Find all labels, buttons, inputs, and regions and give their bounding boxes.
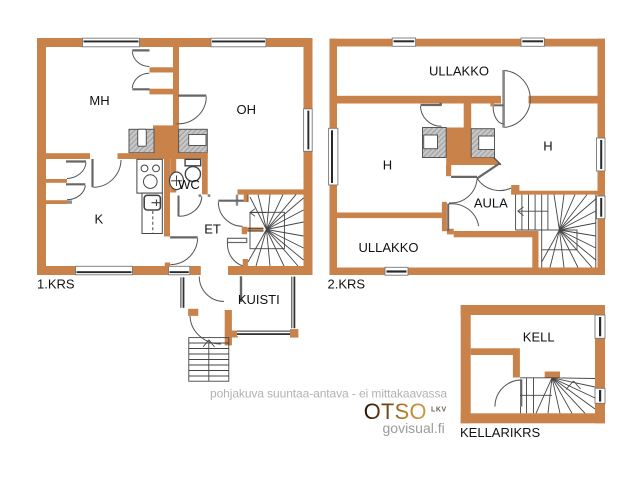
svg-text:KELL: KELL xyxy=(523,330,555,345)
svg-text:K: K xyxy=(94,212,103,227)
svg-text:1.KRS: 1.KRS xyxy=(37,277,75,292)
svg-text:H: H xyxy=(543,139,552,154)
svg-text:AULA: AULA xyxy=(474,196,508,211)
svg-text:govisual.fi: govisual.fi xyxy=(383,420,445,436)
svg-text:ULLAKKO: ULLAKKO xyxy=(359,240,419,255)
svg-text:2.KRS: 2.KRS xyxy=(328,277,366,292)
svg-text:H: H xyxy=(383,158,392,173)
svg-text:WC: WC xyxy=(178,177,200,192)
svg-text:KUISTI: KUISTI xyxy=(238,292,280,307)
svg-text:LKV: LKV xyxy=(431,406,447,413)
svg-text:OH: OH xyxy=(237,102,257,117)
svg-text:ULLAKKO: ULLAKKO xyxy=(429,64,489,79)
svg-text:MH: MH xyxy=(89,93,109,108)
svg-text:KELLARIKRS: KELLARIKRS xyxy=(460,425,541,440)
svg-text:ET: ET xyxy=(204,221,221,236)
